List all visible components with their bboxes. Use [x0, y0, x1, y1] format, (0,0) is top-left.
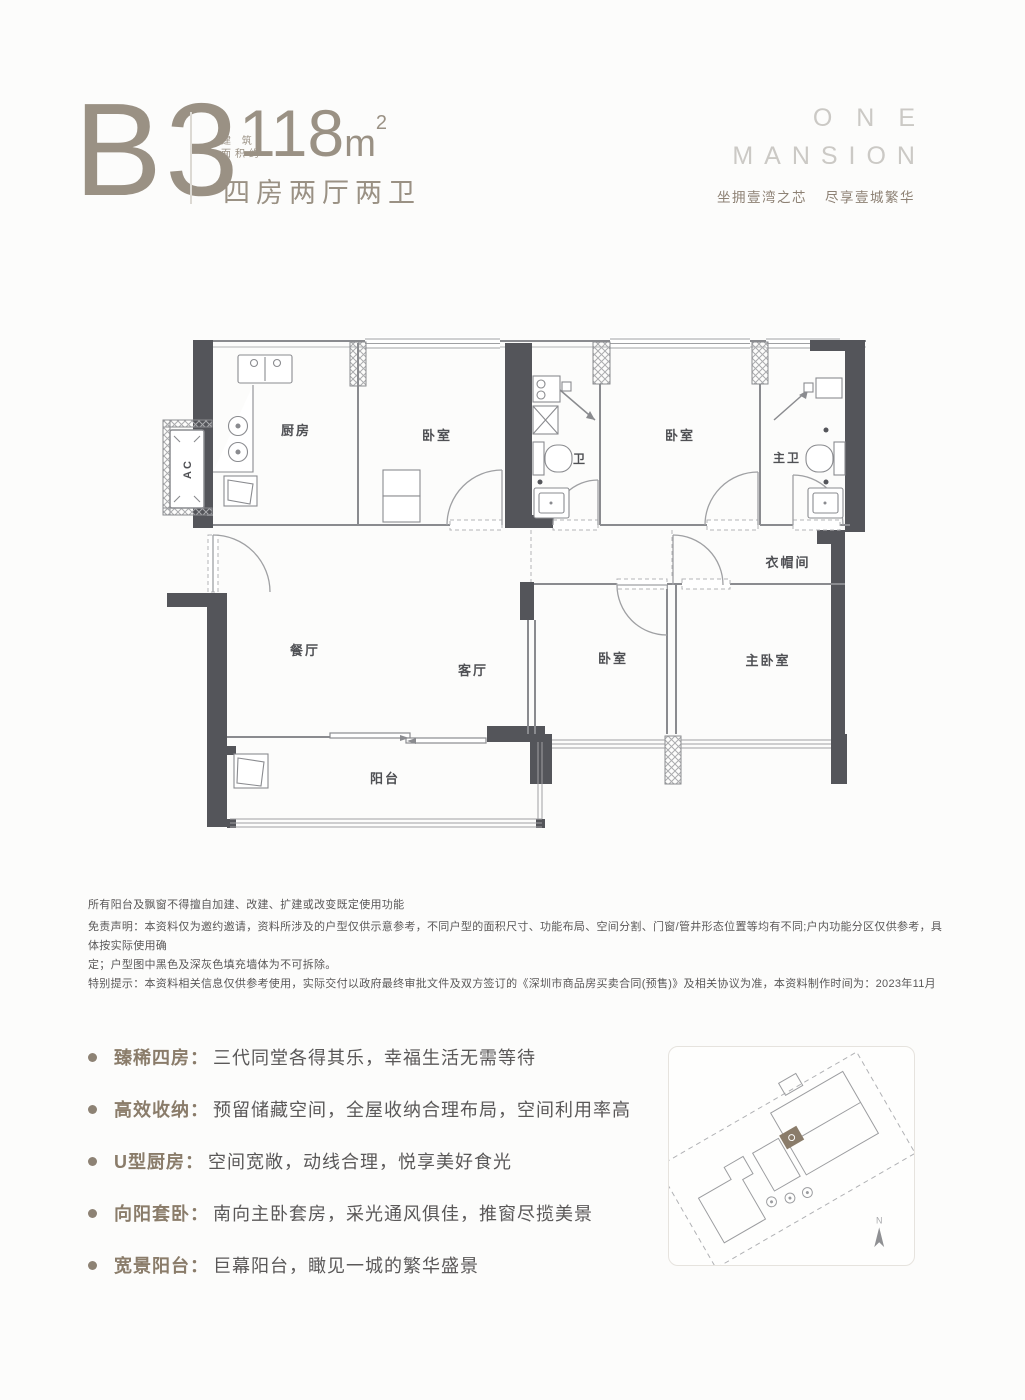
bullet-icon	[88, 1157, 97, 1166]
area-value: 118m2	[239, 100, 387, 166]
brand-tagline: 坐拥壹湾之芯尽享壹城繁华	[717, 186, 915, 206]
bullet-icon	[88, 1261, 97, 1270]
feature-text: 南向主卧套房，采光通风俱佳，推窗尽揽美景	[213, 1200, 593, 1226]
room-label-living-room: 客厅	[458, 663, 488, 678]
area-unit: m	[344, 123, 376, 165]
brand-name-line2: MANSION	[717, 142, 926, 171]
disclaimer-block: 所有阳台及飘窗不得擅自加建、改建、扩建或改变既定使用功能 免责声明：本资料仅为邀…	[88, 896, 948, 994]
feature-item: U型厨房： 空间宽敞，动线合理，悦享美好食光	[88, 1148, 631, 1174]
disclaimer-line: 所有阳台及飘窗不得擅自加建、改建、扩建或改变既定使用功能	[88, 896, 948, 915]
siteplan-drawing: N	[669, 1047, 914, 1265]
unit-code: B3	[74, 84, 241, 216]
siteplan-buildings	[669, 1047, 914, 1265]
feature-item: 高效收纳： 预留储藏空间，全屋收纳合理布局，空间利用率高	[88, 1096, 631, 1122]
room-label-dining-room: 餐厅	[289, 643, 320, 658]
hatched-columns	[163, 342, 768, 784]
room-label-master-bathroom: 主卫	[773, 450, 801, 465]
floorplan-drawing: 厨房 卧室 卫 卧室 主卫 衣帽间 餐厅 客厅 卧室 主卧室 阳台 AC	[150, 330, 880, 850]
feature-label: 宽景阳台：	[114, 1252, 209, 1278]
area-number: 118	[239, 96, 344, 170]
brand-block: ONE MANSION 坐拥壹湾之芯尽享壹城繁华	[717, 104, 915, 206]
feature-label: 高效收纳：	[114, 1096, 209, 1122]
header-divider	[190, 112, 192, 204]
room-label-cloakroom: 衣帽间	[765, 555, 810, 570]
tagline-left: 坐拥壹湾之芯	[717, 190, 807, 205]
floorplan-brochure-page: B3 建 筑 面积约 118m2 四房两厅两卫 ONE MANSION 坐拥壹湾…	[0, 0, 1025, 1400]
siteplan-box: N	[668, 1046, 915, 1266]
area-exponent: 2	[376, 112, 387, 134]
room-label-ac: AC	[182, 459, 194, 479]
feature-label: 向阳套卧：	[114, 1200, 209, 1226]
feature-text: 巨幕阳台，瞰见一城的繁华盛景	[213, 1252, 479, 1278]
tagline-right: 尽享壹城繁华	[825, 190, 915, 205]
room-label-bedroom-2: 卧室	[665, 428, 695, 443]
disclaimer-line: 定；户型图中黑色及深灰色填充墙体为不可拆除。	[88, 956, 948, 975]
room-label-master-bedroom: 主卧室	[745, 653, 790, 668]
feature-item: 宽景阳台： 巨幕阳台，瞰见一城的繁华盛景	[88, 1252, 631, 1278]
feature-text: 三代同堂各得其乐，幸福生活无需等待	[213, 1044, 536, 1070]
disclaimer-line: 特别提示：本资料相关信息仅供参考使用，实际交付以政府最终审批文件及双方签订的《深…	[88, 975, 948, 994]
room-label-bathroom: 卫	[573, 452, 587, 466]
feature-text: 预留储藏空间，全屋收纳合理布局，空间利用率高	[213, 1096, 631, 1122]
shower-screens	[560, 390, 808, 420]
brand-name-line1: ONE	[717, 104, 939, 133]
room-label-bedroom-3: 卧室	[598, 651, 628, 666]
feature-item: 向阳套卧： 南向主卧套房，采光通风俱佳，推窗尽揽美景	[88, 1200, 631, 1226]
bullet-icon	[88, 1105, 97, 1114]
sliding-door	[330, 733, 486, 744]
north-label: N	[876, 1215, 882, 1225]
bullet-icon	[88, 1209, 97, 1218]
window-lines-bottom	[552, 740, 831, 748]
door-thresholds	[208, 520, 840, 592]
feature-item: 臻稀四房： 三代同堂各得其乐，幸福生活无需等待	[88, 1044, 631, 1070]
room-label-balcony: 阳台	[370, 771, 400, 786]
bullet-icon	[88, 1053, 97, 1062]
north-arrow-icon: N	[874, 1215, 884, 1247]
feature-label: 臻稀四房：	[114, 1044, 209, 1070]
feature-text: 空间宽敞，动线合理，悦享美好食光	[208, 1148, 512, 1174]
room-label-kitchen: 厨房	[281, 423, 311, 438]
room-label-bedroom-1: 卧室	[422, 428, 452, 443]
feature-list: 臻稀四房： 三代同堂各得其乐，幸福生活无需等待 高效收纳： 预留储藏空间，全屋收…	[88, 1044, 631, 1304]
layout-text: 四房两厅两卫	[223, 171, 421, 210]
disclaimer-line: 免责声明：本资料仅为邀约邀请，资料所涉及的户型仅供示意参考，不同户型的面积尺寸、…	[88, 918, 948, 956]
feature-label: U型厨房：	[114, 1148, 204, 1174]
